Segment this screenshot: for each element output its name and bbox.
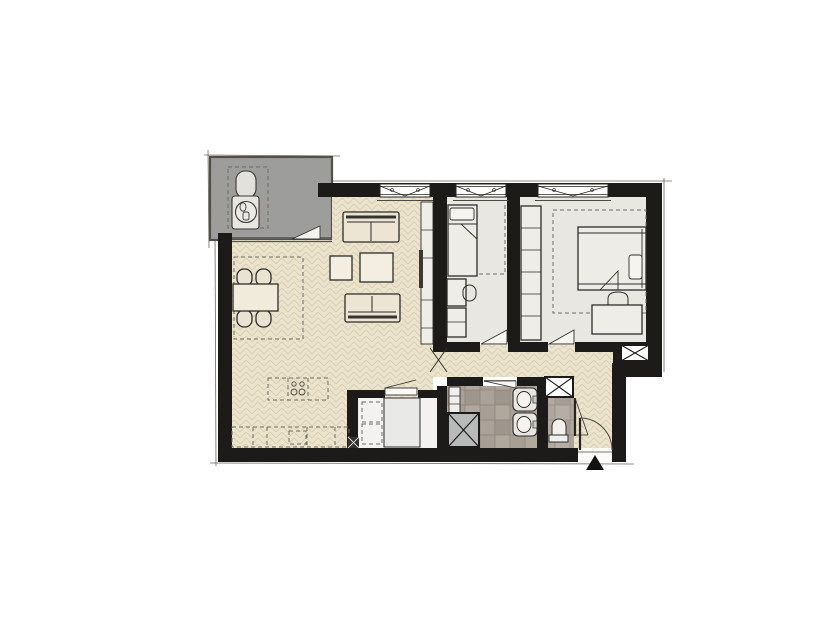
tap-icon — [533, 396, 537, 403]
cabinet — [447, 308, 466, 337]
sofa-bottom — [345, 294, 400, 322]
dining-chair — [237, 310, 252, 327]
utility-mini-shaft — [348, 437, 359, 448]
floor-plan-canvas — [0, 0, 830, 625]
dining-table — [233, 284, 278, 311]
floor-plan-drawing — [0, 0, 830, 625]
lounge-chair-back — [236, 171, 256, 198]
wall-bath-top-2 — [517, 377, 545, 386]
pillow — [629, 255, 642, 279]
right-wall-hatch — [621, 345, 649, 361]
double-bed — [578, 227, 646, 290]
dining-set — [233, 269, 278, 327]
wall-bedrooms-bottom-a — [433, 342, 480, 352]
washbasin-1 — [513, 388, 537, 411]
wall-step — [612, 363, 662, 377]
sketch-line-bottom — [210, 463, 634, 464]
bathroom-shaft — [448, 413, 479, 447]
sketch-line-terrace-left — [208, 150, 209, 248]
wall-utility-right — [437, 386, 447, 448]
coffee-table — [360, 253, 393, 282]
wall-utility-top-1 — [347, 390, 385, 398]
wall-left — [218, 233, 232, 462]
sofa-top — [343, 212, 399, 242]
wc-top-shaft — [545, 377, 573, 397]
wall-bedroom1-bedroom2 — [507, 197, 520, 342]
radiator — [449, 387, 460, 413]
dining-chair — [256, 310, 271, 327]
single-bed — [448, 205, 477, 276]
tap-icon — [533, 421, 537, 428]
wall-living-bedroom1 — [433, 197, 447, 345]
wall-bedrooms-bottom-b — [508, 342, 548, 352]
toilet-bowl — [552, 419, 566, 435]
wall-bath-top-1 — [447, 377, 483, 386]
side-table — [330, 256, 352, 280]
wall-right-lower — [612, 377, 626, 462]
tv-icon — [419, 250, 423, 288]
wall-bottom — [218, 448, 626, 462]
pillow — [450, 208, 474, 220]
desk — [592, 305, 642, 334]
entry-floor — [572, 377, 613, 448]
tv-cabinet — [419, 202, 433, 344]
wall-wc-stub — [540, 437, 548, 448]
sketch-line-terrace-top — [204, 155, 340, 156]
sketch-line-left — [215, 228, 216, 466]
wall-right-upper — [646, 183, 662, 363]
washbasin-2 — [513, 413, 537, 436]
appliance — [384, 398, 420, 447]
toilet-cistern — [549, 435, 568, 442]
wardrobe-column — [521, 206, 541, 340]
